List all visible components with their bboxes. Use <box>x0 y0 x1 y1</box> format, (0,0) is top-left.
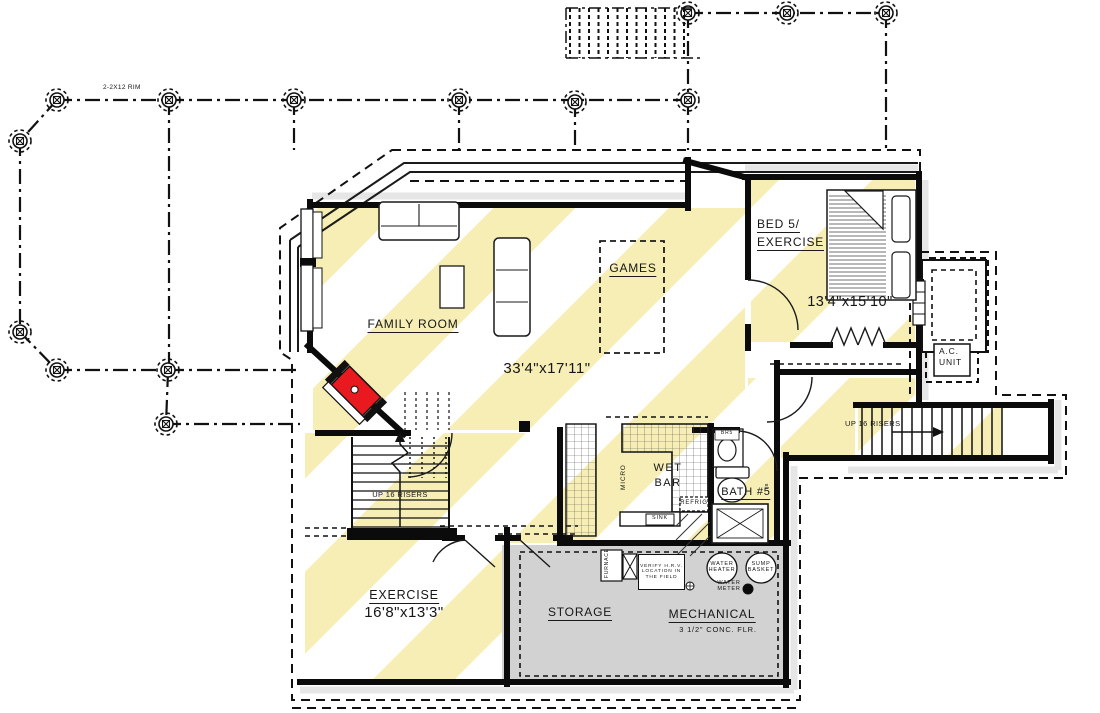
rim-label: 2-2X12 RIM <box>103 84 141 91</box>
family-room-label: FAMILY ROOM <box>367 317 458 333</box>
bed5-label-line2: EXERCISE <box>757 235 824 251</box>
mechanical-label: MECHANICAL <box>669 607 756 623</box>
micro-label: MICRO <box>620 464 627 490</box>
sump-basket-label-line1: SUMP <box>751 561 770 567</box>
refrig-label: REFRIG <box>680 500 707 507</box>
left-stairs-base <box>347 528 457 540</box>
ac-unit-label-line1: A.C. <box>939 347 959 357</box>
vanity-label: BR5 <box>721 431 733 437</box>
games-label: GAMES <box>609 261 656 277</box>
exercise-label: EXERCISE <box>369 588 439 604</box>
hrv-note-line3: THE FIELD <box>646 575 678 581</box>
sump-basket-label-line2: BASKET <box>748 567 775 573</box>
wet-bar-label-line2: BAR <box>654 477 681 490</box>
water-heater-label-line1: WATER <box>710 561 733 567</box>
bed5-dims: 13'4"x15'10" <box>807 294 893 311</box>
exercise-dims: 16'8"x13'3" <box>364 604 443 621</box>
ac-unit-label-line2: UNIT <box>939 358 962 368</box>
towel-bar-label: TB <box>764 483 769 490</box>
right-stairs-label: UP 16 RISERS <box>845 420 901 429</box>
water-meter-label-line2: METER <box>717 586 740 592</box>
family-room-dims: 33'4"x17'11" <box>503 360 590 377</box>
wet-bar-label-line1: WET <box>654 462 683 475</box>
water-heater-label-line2: HEATER <box>709 567 736 573</box>
left-stairs-label: UP 16 RISERS <box>372 491 428 500</box>
storage-label: STORAGE <box>548 605 612 621</box>
furnace-label: FURNACE <box>605 548 611 578</box>
bed5-label-line1: BED 5/ <box>757 217 800 233</box>
west-windows <box>300 209 322 331</box>
stoop <box>913 260 986 352</box>
water-meter-label-line1: WATER <box>717 580 740 586</box>
bed <box>827 190 916 300</box>
structural-post <box>519 421 530 432</box>
basement-floor-plan: 2-2X12 RIM FAMILY ROOM 33'4"x17'11" GAME… <box>0 0 1100 713</box>
sink-label: SINK <box>652 515 668 521</box>
mechanical-floor-note: 3 1/2" CONC. FLR. <box>679 626 757 635</box>
